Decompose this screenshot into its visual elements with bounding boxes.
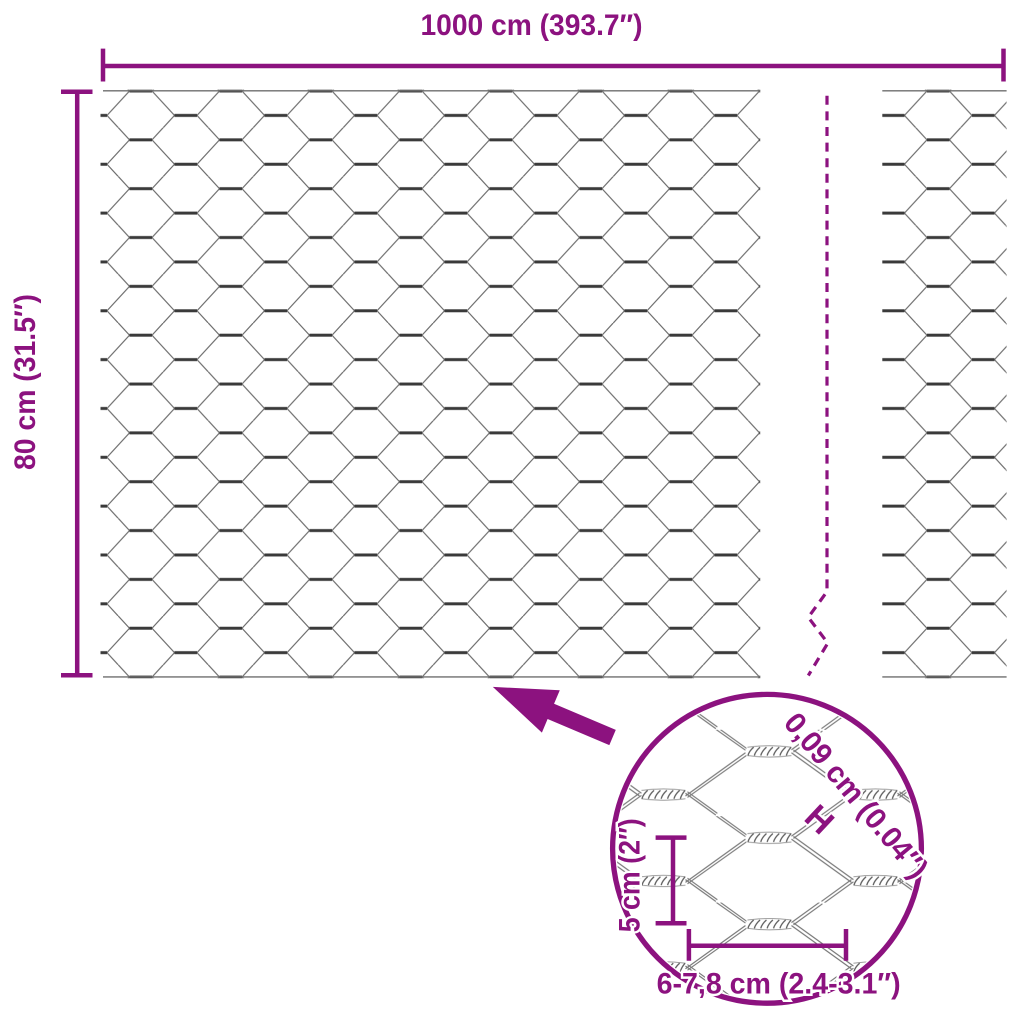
svg-text:6-7,8 cm (2.4-3.1″): 6-7,8 cm (2.4-3.1″) <box>657 968 901 1001</box>
svg-text:80 cm (31.5″): 80 cm (31.5″) <box>9 294 42 470</box>
svg-text:1000 cm (393.7″): 1000 cm (393.7″) <box>421 9 643 42</box>
svg-text:5 cm (2″): 5 cm (2″) <box>614 818 647 932</box>
